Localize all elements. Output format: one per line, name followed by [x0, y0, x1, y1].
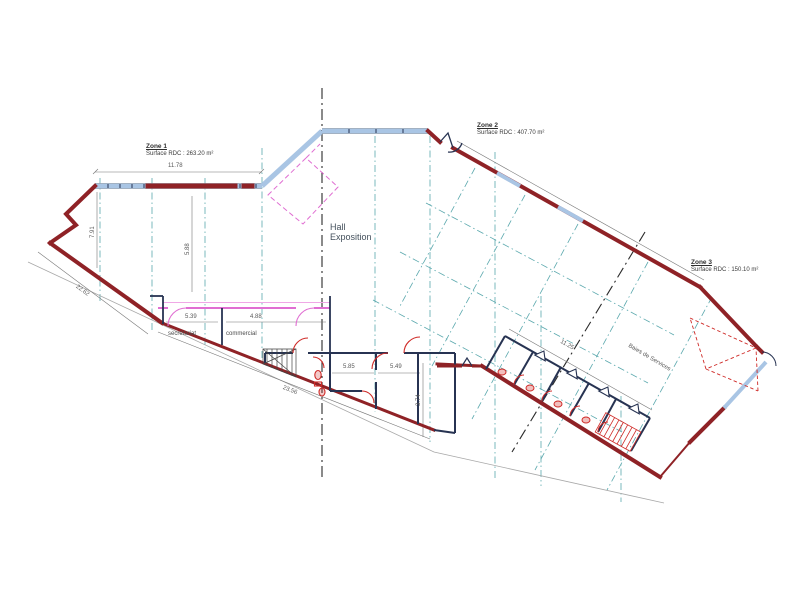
wall-break-glyph — [440, 133, 462, 152]
doors-fixtures-service — [498, 369, 608, 432]
floorplan-canvas: Zone 1 Surface RDC : 263.20 m² Zone 2 Su… — [0, 0, 800, 600]
dim-room-585: 5.85 — [343, 364, 355, 371]
hall-bottom-wall — [437, 358, 482, 366]
zone2-title: Zone 2 — [477, 122, 498, 129]
site-boundary — [28, 262, 664, 503]
dim-secretariat: 5.39 — [185, 314, 197, 321]
zone3-title: Zone 3 — [691, 259, 712, 266]
commercial-label: commercial — [226, 331, 257, 338]
office-partitions — [150, 296, 330, 353]
dim-commercial: 4.88 — [250, 314, 262, 321]
dim-left-2: 5.88 — [185, 243, 192, 255]
centerlines-layer — [322, 88, 645, 478]
hall-exposition-label: Hall Exposition — [330, 222, 372, 243]
ne-facade-windows — [497, 173, 766, 408]
dim-block-height: 3.74 — [416, 394, 423, 406]
zone3-surface: Surface RDC : 150.10 m² — [691, 267, 758, 274]
zone2-surface: Surface RDC : 407.70 m² — [477, 130, 544, 137]
zone1-surface: Surface RDC : 263.20 m² — [146, 151, 213, 158]
service-rooms-walls — [486, 336, 650, 451]
glazed-facades — [95, 128, 428, 188]
floorplan-drawing — [0, 0, 800, 600]
secretariat-label: secrétariat — [168, 331, 196, 338]
dim-room-549: 5.49 — [390, 364, 402, 371]
canopy-dashed-outline — [268, 144, 338, 224]
dim-left-1: 7.91 — [90, 226, 97, 238]
exterior-walls — [50, 131, 762, 477]
dim-top-facade: 11.78 — [168, 163, 183, 170]
zone1-title: Zone 1 — [146, 143, 167, 150]
